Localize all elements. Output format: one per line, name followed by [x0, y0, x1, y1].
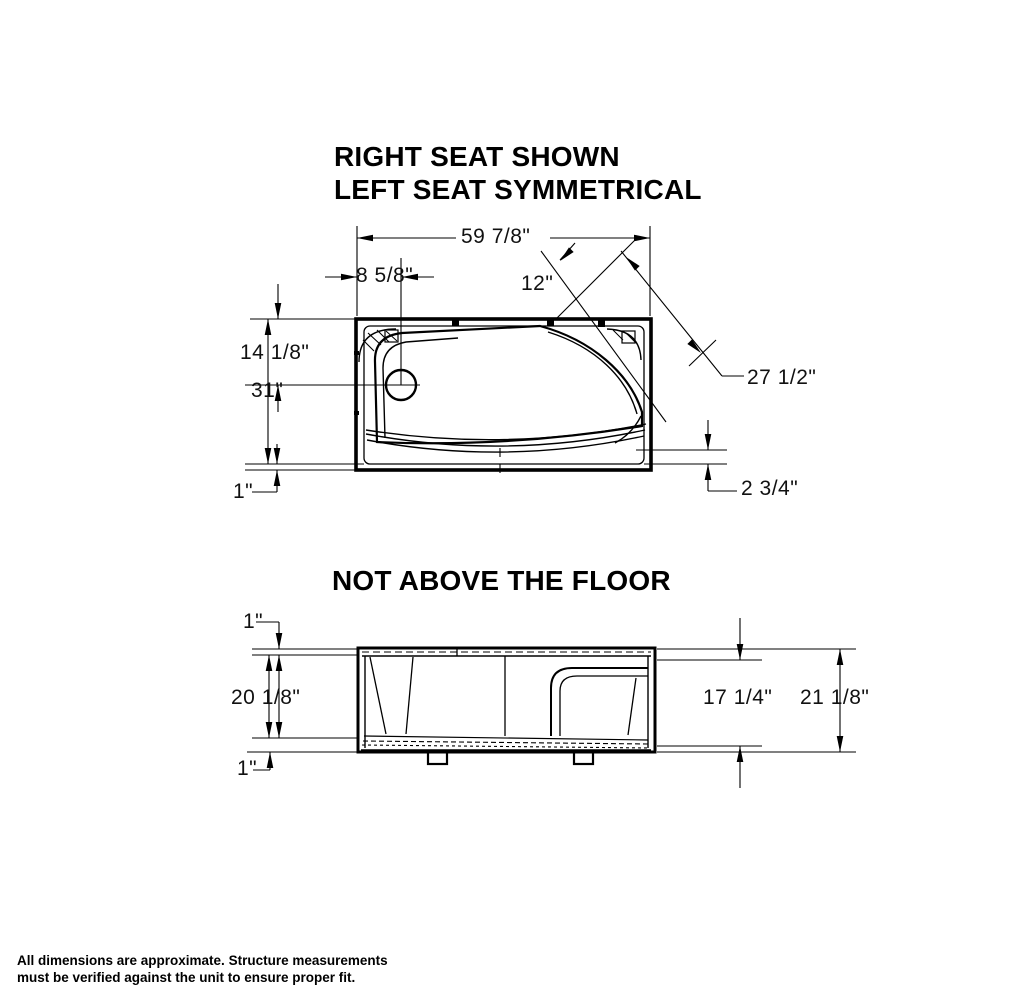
- drawing-title-line2: LEFT SEAT SYMMETRICAL: [334, 173, 702, 206]
- disclaimer-line1: All dimensions are approximate. Structur…: [17, 953, 388, 970]
- dim-seat-corner-label: 2 3/4": [741, 477, 798, 500]
- drawing-title-line1: RIGHT SEAT SHOWN: [334, 140, 702, 173]
- top-view-drawing: [354, 319, 651, 473]
- dim-rim-front-label: 1": [233, 480, 253, 503]
- drawing-sheet: RIGHT SEAT SHOWN LEFT SEAT SYMMETRICAL N…: [0, 0, 1024, 1007]
- disclaimer-line2: must be verified against the unit to ens…: [17, 970, 388, 987]
- side-view-title: NOT ABOVE THE FLOOR: [332, 564, 671, 597]
- drawing-title: RIGHT SEAT SHOWN LEFT SEAT SYMMETRICAL: [334, 140, 702, 206]
- disclaimer-note: All dimensions are approximate. Structur…: [17, 953, 388, 986]
- dim-apron-height-label: 20 1/8": [231, 686, 300, 709]
- dim-drain-offset-label: 8 5/8": [356, 264, 413, 287]
- dim-overall-height-label: 21 1/8": [800, 686, 869, 709]
- dim-rim-bottom-label: 1": [237, 757, 257, 780]
- dim-seat-width-label: 12": [521, 272, 553, 295]
- dim-overall-depth-label: 31": [251, 379, 283, 402]
- dim-inner-height-label: 17 1/4": [703, 686, 772, 709]
- side-view-drawing: [358, 648, 655, 764]
- dim-rim-top-label: 1": [243, 610, 263, 633]
- dim-seat-diagonal-label: 27 1/2": [747, 366, 816, 389]
- dim-drain-setback-label: 14 1/8": [240, 341, 309, 364]
- dim-overall-width-label: 59 7/8": [458, 225, 533, 248]
